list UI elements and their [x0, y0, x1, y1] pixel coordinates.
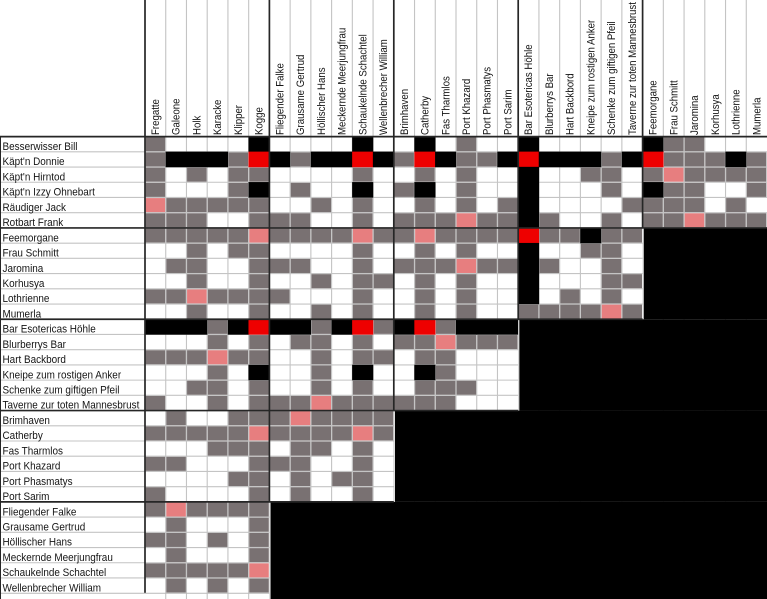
svg-text:Catherby: Catherby — [420, 95, 432, 135]
svg-text:Port Phasmatys: Port Phasmatys — [482, 67, 494, 135]
svg-text:Fliegender Falke: Fliegender Falke — [3, 506, 77, 519]
svg-text:Käpt'n Izzy Ohnebart: Käpt'n Izzy Ohnebart — [3, 186, 95, 199]
svg-text:Schaukelnde Schachtel: Schaukelnde Schachtel — [358, 34, 370, 135]
svg-text:Korhusya: Korhusya — [3, 277, 45, 290]
svg-text:Grausame Gertrud: Grausame Gertrud — [296, 54, 308, 135]
svg-text:Galeone: Galeone — [171, 98, 183, 135]
svg-text:Frau Schmitt: Frau Schmitt — [3, 247, 59, 260]
svg-text:Fas Tharmlos: Fas Tharmlos — [3, 445, 64, 458]
svg-text:Holk: Holk — [192, 115, 204, 135]
svg-text:Kogge: Kogge — [254, 107, 266, 135]
svg-text:Käpt'n Hirntod: Käpt'n Hirntod — [3, 171, 66, 184]
svg-text:Schenke zum giftigen Pfeil: Schenke zum giftigen Pfeil — [607, 21, 619, 135]
svg-text:Rotbart Frank: Rotbart Frank — [3, 217, 64, 230]
svg-text:Grausame Gertrud: Grausame Gertrud — [3, 521, 86, 534]
svg-text:Port Khazard: Port Khazard — [3, 460, 61, 473]
svg-text:Jaromina: Jaromina — [3, 262, 44, 275]
svg-text:Schenke zum giftigen Pfeil: Schenke zum giftigen Pfeil — [3, 384, 120, 397]
svg-text:Hart Backbord: Hart Backbord — [565, 73, 577, 135]
svg-text:Kneipe zum rostigen Anker: Kneipe zum rostigen Anker — [3, 369, 122, 382]
svg-text:Fregatte: Fregatte — [151, 99, 163, 135]
svg-text:Fliegender Falke: Fliegender Falke — [275, 63, 287, 135]
svg-text:Meckernde Meerjungfrau: Meckernde Meerjungfrau — [337, 28, 349, 135]
svg-text:Feemorgane: Feemorgane — [648, 80, 660, 135]
svg-text:Mumerla: Mumerla — [3, 308, 42, 321]
svg-text:Schaukelnde Schachtel: Schaukelnde Schachtel — [3, 567, 107, 580]
svg-text:Catherby: Catherby — [3, 430, 44, 443]
svg-text:Taverne zur toten Mannesbrust: Taverne zur toten Mannesbrust — [627, 2, 639, 135]
svg-text:Frau Schmitt: Frau Schmitt — [669, 80, 681, 135]
svg-text:Bar Esotericas Höhle: Bar Esotericas Höhle — [524, 44, 536, 135]
svg-text:Kneipe zum rostigen Anker: Kneipe zum rostigen Anker — [586, 19, 598, 135]
svg-text:Klipper: Klipper — [233, 104, 245, 135]
svg-text:Meckernde Meerjungfrau: Meckernde Meerjungfrau — [3, 551, 113, 564]
svg-text:Taverne zur toten Mannesbrust: Taverne zur toten Mannesbrust — [3, 399, 140, 412]
svg-text:Feemorgane: Feemorgane — [3, 232, 59, 245]
svg-text:Lothrienne: Lothrienne — [3, 293, 50, 306]
svg-text:Hart Backbord: Hart Backbord — [3, 354, 67, 367]
svg-text:Port Sarim: Port Sarim — [3, 491, 50, 504]
svg-text:Lothrienne: Lothrienne — [731, 89, 743, 135]
svg-text:Blurberrys Bar: Blurberrys Bar — [544, 73, 556, 135]
svg-text:Käpt'n Donnie: Käpt'n Donnie — [3, 156, 65, 169]
svg-text:Wellenbrecher William: Wellenbrecher William — [379, 39, 391, 135]
svg-text:Fas Tharmlos: Fas Tharmlos — [441, 76, 453, 135]
svg-text:Port Khazard: Port Khazard — [462, 78, 474, 135]
svg-text:Wellenbrecher William: Wellenbrecher William — [3, 582, 102, 595]
svg-text:Port Phasmatys: Port Phasmatys — [3, 475, 73, 488]
svg-text:Korhusya: Korhusya — [710, 94, 722, 135]
svg-text:Höllischer Hans: Höllischer Hans — [3, 536, 73, 549]
svg-text:Blurberrys Bar: Blurberrys Bar — [3, 338, 67, 351]
svg-text:Port Sarim: Port Sarim — [503, 89, 515, 135]
svg-text:Jaromina: Jaromina — [690, 95, 702, 135]
svg-text:Bar Esotericas Höhle: Bar Esotericas Höhle — [3, 323, 96, 336]
svg-text:Karacke: Karacke — [213, 99, 225, 135]
svg-text:Mumerla: Mumerla — [752, 97, 764, 135]
svg-text:Brimhaven: Brimhaven — [3, 414, 51, 427]
svg-text:Höllischer Hans: Höllischer Hans — [316, 67, 328, 135]
svg-text:Brimhaven: Brimhaven — [399, 89, 411, 135]
svg-text:Besserwisser Bill: Besserwisser Bill — [3, 140, 78, 153]
svg-text:Räudiger Jack: Räudiger Jack — [3, 201, 67, 214]
